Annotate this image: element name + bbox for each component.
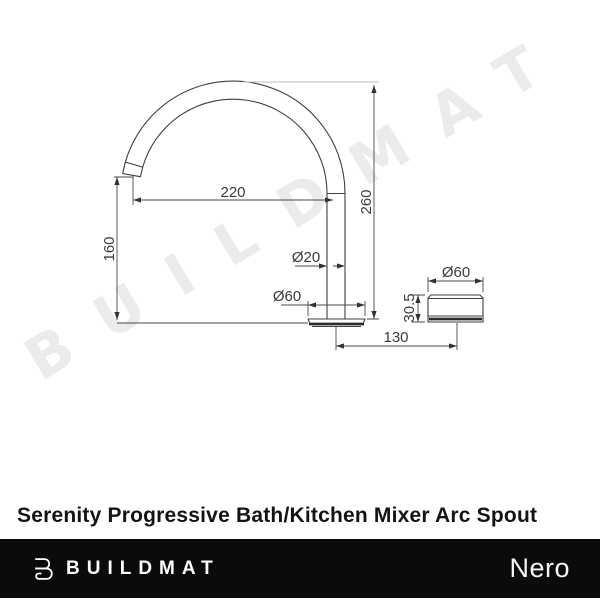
dimension-arrow <box>428 278 436 283</box>
dimension-body-diameter: Ø60 <box>428 264 483 292</box>
base-plate <box>308 319 365 327</box>
partner-brand-nero: Nero <box>509 553 570 584</box>
brand-name: BUILDMAT <box>66 558 220 580</box>
dimension-label-130: 130 <box>383 329 408 346</box>
technical-drawing: 220 260 160 Ø20 Ø60 Ø60 <box>0 0 600 500</box>
buildmat-b-icon <box>30 555 57 582</box>
dimension-label-d60-base: Ø60 <box>273 288 301 305</box>
spout-tip-band <box>125 162 142 167</box>
dimension-arrow <box>475 278 483 283</box>
dimension-arrow <box>325 197 333 202</box>
dimension-arrow <box>357 302 365 307</box>
dimension-body-height: 30.5 <box>401 293 425 322</box>
dimension-label-260: 260 <box>358 189 375 214</box>
dimension-arrow <box>133 197 141 202</box>
dimension-arrow <box>337 263 345 268</box>
dimension-label-160: 160 <box>101 236 118 261</box>
dimension-arrow <box>114 312 119 320</box>
footer-bar: BUILDMAT Nero <box>0 539 600 598</box>
dimension-spout-height: 260 <box>243 82 379 319</box>
dimension-label-220: 220 <box>220 184 245 201</box>
dimension-pipe-diameter: Ø20 <box>292 249 345 269</box>
dimension-arrow <box>336 343 344 348</box>
dimension-label-d60-body: Ø60 <box>442 264 470 281</box>
dimension-arrow <box>308 302 316 307</box>
dimension-arrow <box>114 177 119 185</box>
dimension-spout-reach: 220 <box>114 177 333 205</box>
buildmat-logo: BUILDMAT <box>30 555 220 582</box>
dimension-arrow <box>319 263 327 268</box>
dimension-arrow <box>371 85 376 93</box>
dimension-base-diameter: Ø60 <box>273 288 365 316</box>
dimension-arrow <box>449 343 457 348</box>
dimension-label-30-5: 30.5 <box>401 293 418 322</box>
dimension-arrow <box>371 311 376 319</box>
dimension-label-d20: Ø20 <box>292 249 320 266</box>
mixer-body-side-view <box>428 295 483 322</box>
product-title: Serenity Progressive Bath/Kitchen Mixer … <box>17 504 587 528</box>
